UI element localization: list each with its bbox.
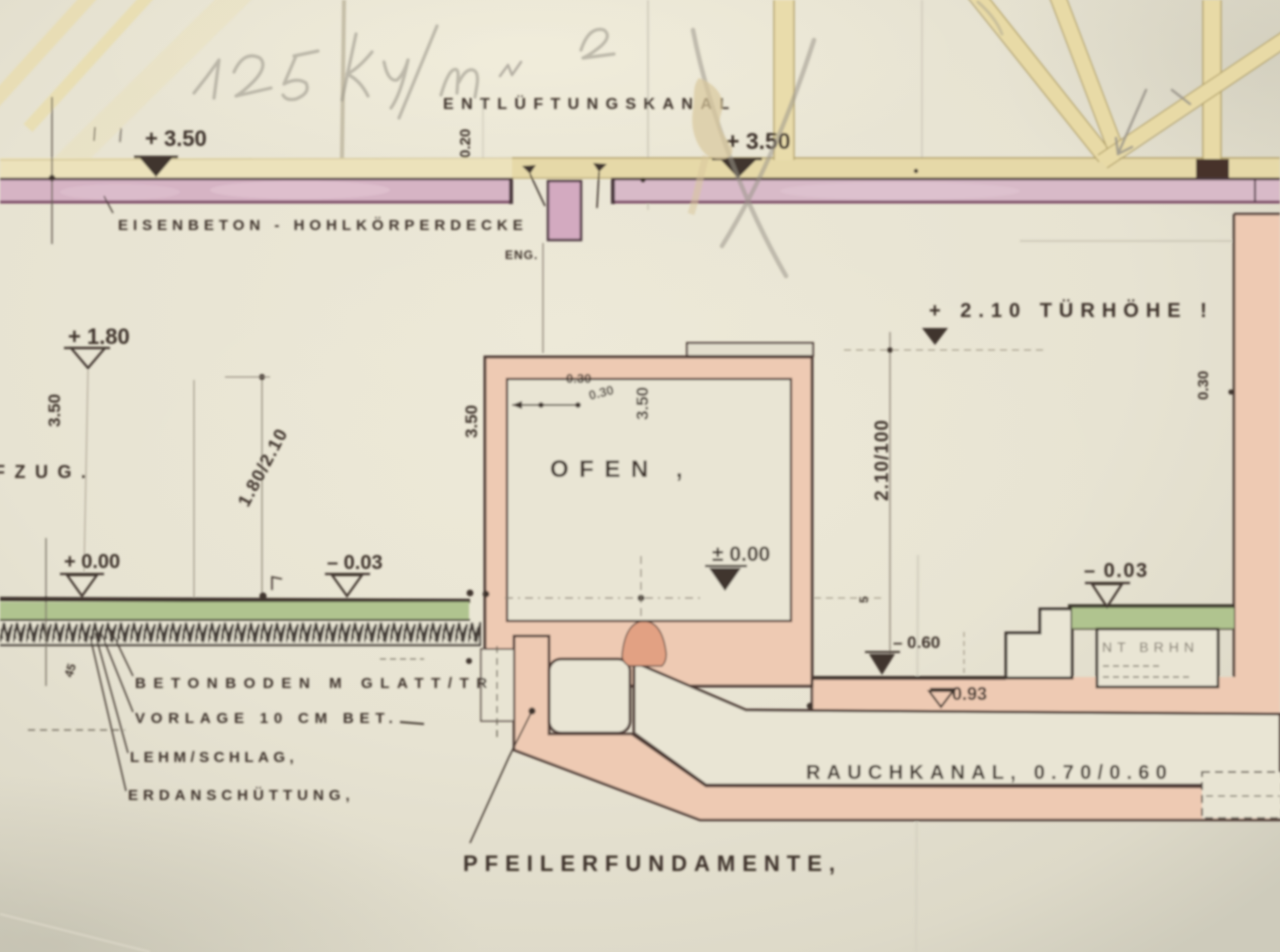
- svg-text:ERDANSCHÜTTUNG,: ERDANSCHÜTTUNG,: [128, 787, 355, 804]
- svg-text:0.93: 0.93: [952, 684, 987, 704]
- svg-text:– 0.60: – 0.60: [893, 633, 940, 652]
- svg-text:3.50: 3.50: [45, 394, 64, 427]
- svg-text:0.20: 0.20: [457, 129, 474, 158]
- svg-text:VORLAGE 10 CM BET.: VORLAGE 10 CM BET.: [135, 710, 399, 727]
- svg-text:2.10/100: 2.10/100: [872, 419, 893, 501]
- svg-text:+ 0.00: + 0.00: [64, 551, 120, 573]
- svg-text:LEHM/SCHLAG,: LEHM/SCHLAG,: [130, 749, 298, 766]
- svg-text:0.30: 0.30: [566, 371, 591, 386]
- svg-text:RAUCHKANAL, 0.70/0.60: RAUCHKANAL, 0.70/0.60: [806, 762, 1173, 784]
- svg-text:+ 2.10 TÜRHÖHE !: + 2.10 TÜRHÖHE !: [929, 299, 1214, 322]
- svg-text:BETONBODEN M GLATT/TR: BETONBODEN M GLATT/TR: [135, 675, 495, 692]
- svg-text:3.50: 3.50: [462, 405, 481, 438]
- svg-text:+ 3.50: + 3.50: [145, 126, 207, 151]
- svg-text:ENG.: ENG.: [505, 248, 538, 262]
- svg-text:FZUG.: FZUG.: [0, 462, 96, 482]
- svg-text:± 0.00: ± 0.00: [712, 543, 770, 566]
- svg-text:5: 5: [857, 596, 871, 603]
- svg-text:PFEILERFUNDAMENTE,: PFEILERFUNDAMENTE,: [463, 851, 842, 876]
- svg-text:3.50: 3.50: [633, 387, 652, 420]
- svg-text:OFEN ,: OFEN ,: [550, 456, 693, 483]
- svg-text:+ 1.80: + 1.80: [68, 324, 130, 349]
- svg-text:EISENBETON - HOHLKÖRPERDECKE: EISENBETON - HOHLKÖRPERDECKE: [118, 217, 528, 234]
- svg-text:– 0.03: – 0.03: [1084, 560, 1149, 582]
- svg-text:0.30: 0.30: [1195, 371, 1212, 400]
- svg-text:– 0.03: – 0.03: [327, 552, 383, 574]
- svg-text:NT BRHN: NT BRHN: [1102, 639, 1199, 655]
- svg-text:ENTLÜFTUNGSKANAL: ENTLÜFTUNGSKANAL: [443, 94, 737, 113]
